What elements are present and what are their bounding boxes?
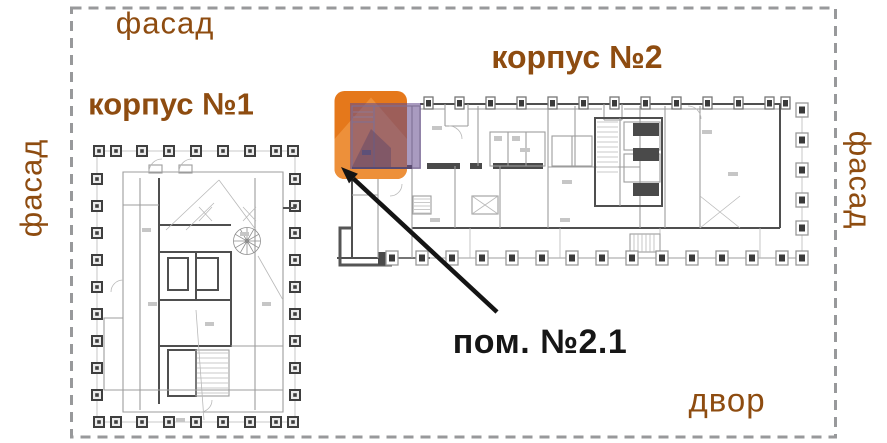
pointer-arrow — [341, 167, 497, 312]
label-facade-right: фасад — [845, 131, 876, 230]
label-facade-left: фасад — [16, 139, 47, 238]
selected-room-overlay — [350, 103, 421, 169]
building-1-floor-plan — [92, 146, 300, 427]
dashed-boundary — [72, 8, 836, 437]
label-facade-top: фасад — [116, 8, 215, 39]
label-building-2: корпус №2 — [491, 41, 662, 73]
site-plan-canvas — [0, 0, 887, 443]
site-plan: фасад фасад фасад корпус №1 корпус №2 по… — [0, 0, 887, 443]
label-yard: двор — [688, 384, 765, 417]
label-room: пом. №2.1 — [453, 325, 628, 359]
label-building-1: корпус №1 — [88, 89, 254, 120]
